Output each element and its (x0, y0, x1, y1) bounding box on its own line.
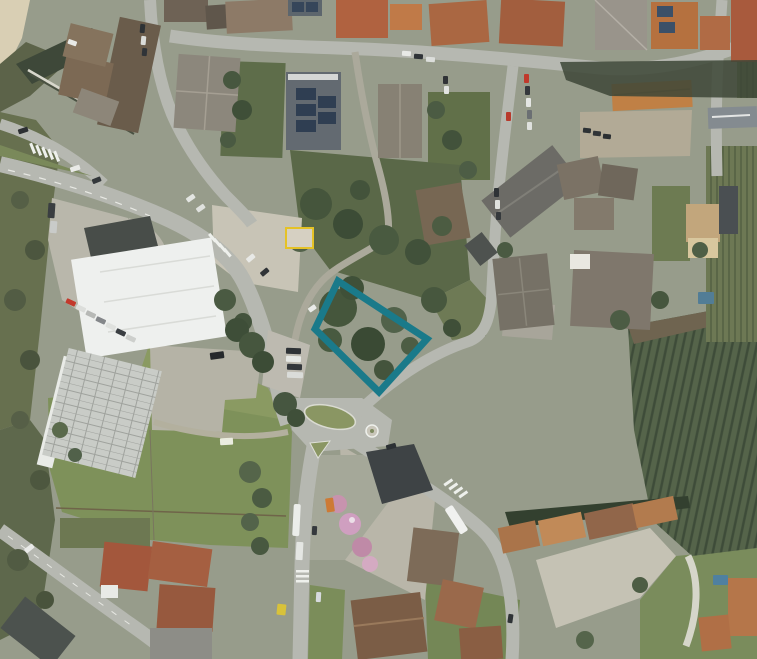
car (603, 134, 611, 140)
trees-shape (241, 513, 259, 531)
trees-shape (251, 537, 269, 555)
van (286, 356, 301, 363)
buildings-shape (390, 4, 422, 30)
buildings-shape (659, 22, 675, 33)
car (494, 188, 499, 197)
satellite-scene (0, 0, 757, 659)
trees-shape (214, 289, 236, 311)
trees-shape (25, 240, 45, 260)
van (220, 438, 233, 446)
ground-shape (652, 186, 690, 261)
trees-shape (692, 242, 708, 258)
markings-shape (296, 575, 309, 578)
buildings-shape (288, 74, 338, 80)
trees-shape (349, 517, 355, 523)
markings-shape (296, 570, 309, 573)
car (414, 54, 423, 60)
trees-shape (4, 289, 26, 311)
buildings-shape (296, 120, 316, 132)
trees-shape (287, 409, 305, 427)
blue-tarp (698, 292, 714, 304)
car (426, 57, 435, 63)
buildings-shape (698, 615, 731, 652)
buildings-shape (164, 0, 208, 22)
trees-shape (220, 132, 236, 148)
buildings-shape (429, 0, 490, 46)
car (141, 36, 147, 45)
buildings-shape (150, 628, 212, 659)
trees-shape (610, 310, 630, 330)
trees-shape (252, 351, 274, 373)
red-car (506, 112, 511, 121)
van (287, 364, 302, 371)
car (443, 76, 448, 84)
buildings-shape (292, 2, 304, 12)
car (583, 128, 591, 134)
car (495, 200, 500, 209)
truck (296, 542, 304, 560)
car (312, 526, 317, 535)
trees-shape (459, 161, 477, 179)
trees-shape (300, 188, 332, 220)
scene-root (0, 0, 757, 659)
car (316, 592, 322, 602)
car (496, 212, 501, 220)
buildings-shape (570, 254, 590, 269)
buildings-shape (415, 182, 470, 245)
buildings-shape (296, 88, 316, 100)
buildings-shape (318, 112, 336, 124)
trees-shape (421, 287, 447, 313)
buildings-shape (318, 96, 336, 108)
tan-house (686, 204, 720, 242)
trees-shape (442, 130, 462, 150)
buildings-shape (157, 584, 216, 632)
buildings-shape (598, 164, 638, 201)
trees-shape (497, 242, 513, 258)
buildings-shape (459, 626, 503, 659)
trees-shape (239, 461, 261, 483)
buildings-shape (499, 0, 565, 47)
buildings-shape (731, 0, 757, 62)
trees-shape (36, 591, 54, 609)
pink-blossom-tree (339, 513, 361, 535)
buildings-shape (306, 2, 318, 12)
buildings-shape (100, 542, 152, 592)
car (525, 86, 530, 95)
trees-shape (11, 191, 29, 209)
car (526, 98, 531, 107)
yellow-dumpster (276, 604, 286, 616)
car (527, 110, 532, 119)
trees-shape (576, 631, 594, 649)
trees-shape (405, 239, 431, 265)
car (402, 51, 411, 57)
buildings-shape (719, 186, 738, 234)
buildings-shape (336, 0, 388, 38)
buildings-shape (407, 527, 459, 586)
red-car (524, 74, 529, 83)
car (444, 86, 449, 94)
trees-shape (427, 101, 445, 119)
car (593, 131, 601, 137)
trees-shape (651, 291, 669, 309)
buildings-shape (574, 198, 614, 230)
buildings-shape (101, 585, 118, 598)
truck (47, 203, 55, 218)
pink-blossom-tree (352, 537, 372, 557)
trees-shape (333, 209, 363, 239)
markings-shape (370, 429, 374, 433)
trees-shape (350, 180, 370, 200)
trees-shape (632, 577, 648, 593)
car (527, 122, 532, 130)
truck (50, 221, 58, 233)
buildings-shape (434, 579, 484, 629)
buildings-shape (700, 16, 730, 50)
pink-blossom-tree (362, 556, 378, 572)
trees-shape (68, 448, 82, 462)
trees-shape (11, 411, 29, 429)
trees-shape (223, 71, 241, 89)
buildings-shape (657, 6, 673, 17)
trees-shape (369, 225, 399, 255)
buildings-shape (728, 578, 757, 636)
van (287, 372, 303, 379)
satellite-map (0, 0, 757, 659)
trees-shape (432, 216, 452, 236)
trees-shape (30, 470, 50, 490)
trees-shape (232, 100, 252, 120)
markings-shape (296, 580, 309, 583)
trees-shape (20, 350, 40, 370)
yellow-edged-kiosk (286, 228, 313, 248)
ground-shape (308, 585, 345, 659)
buildings-shape (225, 0, 293, 34)
trees-shape (351, 327, 385, 361)
trees-shape (52, 422, 68, 438)
swimming-pool (713, 575, 728, 585)
trees-shape (252, 488, 272, 508)
trees-shape (443, 319, 461, 337)
buildings-shape (296, 104, 316, 116)
car (142, 48, 148, 56)
trees-shape (7, 549, 29, 571)
car (140, 24, 146, 33)
van (286, 348, 301, 355)
